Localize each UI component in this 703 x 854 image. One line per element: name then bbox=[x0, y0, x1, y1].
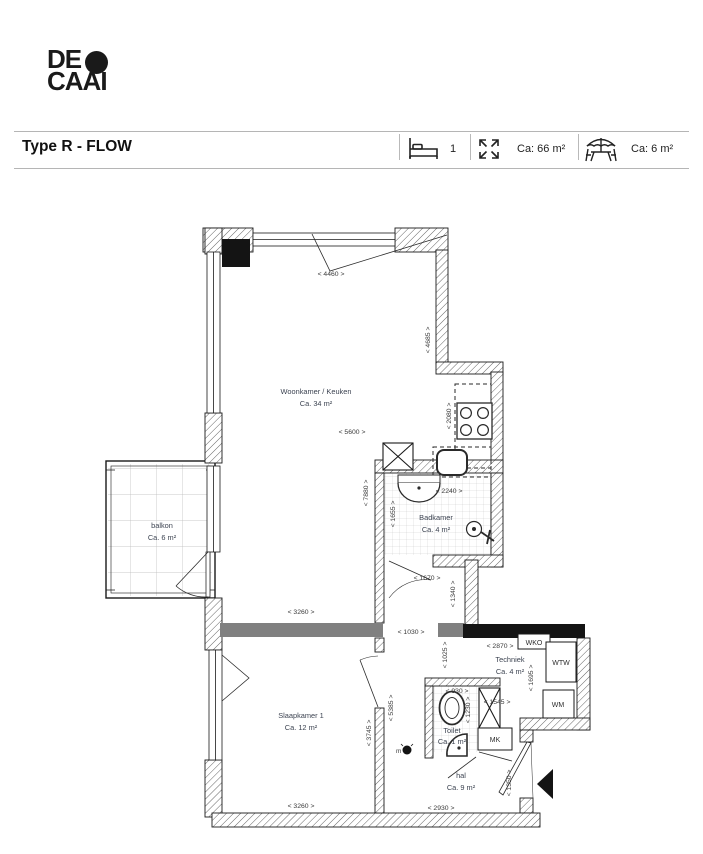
dim-label: < 1670 > bbox=[414, 575, 441, 582]
wall-segment bbox=[577, 638, 590, 730]
shaft-x-box bbox=[479, 688, 500, 728]
dim-label: < 1030 > bbox=[398, 629, 425, 636]
dim-label: < 5385 > bbox=[388, 695, 395, 722]
room-name: Slaapkamer 1 bbox=[278, 711, 324, 720]
room-area: Ca. 4 m² bbox=[422, 525, 451, 534]
gray-wall bbox=[220, 623, 383, 637]
wall-segment bbox=[425, 678, 500, 686]
room-area: Ca. 6 m² bbox=[148, 533, 177, 542]
dim-label: < 2870 > bbox=[487, 643, 514, 650]
entrance-arrow-icon bbox=[537, 769, 553, 799]
mv-point-label: m bbox=[396, 748, 401, 755]
room-area: Ca. 9 m² bbox=[447, 783, 476, 792]
dim-label: < 1025 > bbox=[442, 642, 449, 669]
closet-label: WM bbox=[552, 702, 565, 709]
toilet-bowl bbox=[440, 692, 465, 725]
dim-label: < 1695 > bbox=[528, 665, 535, 692]
floor-plan: m Woonkamer / Keuken Ca. 34 m² balkon Ca… bbox=[0, 0, 703, 854]
dim-label: < 1545 > bbox=[484, 699, 511, 706]
dim-label: < 2930 > bbox=[428, 805, 455, 812]
closet-label: MK bbox=[490, 737, 501, 744]
wall-segment bbox=[205, 228, 222, 254]
dim-label: < 7880 > bbox=[363, 480, 370, 507]
wall-segment bbox=[465, 560, 478, 626]
kitchen-sink bbox=[437, 450, 467, 475]
dim-label: < 930 > bbox=[445, 688, 468, 695]
dim-label: < 3745 > bbox=[366, 720, 373, 747]
room-area: Ca. 12 m² bbox=[285, 723, 318, 732]
wall-segment bbox=[205, 760, 222, 817]
window bbox=[253, 233, 395, 246]
wall-segment bbox=[436, 250, 448, 364]
mv-point: m bbox=[396, 744, 413, 755]
dim-label: < 2080 > bbox=[446, 403, 453, 430]
dim-label: < 1230 > bbox=[465, 697, 472, 724]
dim-label: < 3260 > bbox=[288, 803, 315, 810]
shaft-x-box bbox=[383, 443, 413, 470]
closet-label: WKO bbox=[526, 640, 543, 647]
slaapkamer-door bbox=[360, 656, 378, 707]
floor-finishes bbox=[108, 464, 491, 752]
interior-walls bbox=[220, 239, 585, 638]
wall-segment bbox=[425, 686, 433, 758]
dim-label: < 1340 > bbox=[450, 581, 457, 608]
wall-segment bbox=[205, 413, 222, 463]
wall-segment bbox=[212, 813, 540, 827]
dim-label: < 2240 > bbox=[436, 488, 463, 495]
room-name: Woonkamer / Keuken bbox=[281, 387, 352, 396]
dim-label: < 1655 > bbox=[390, 501, 397, 528]
shaft-black-square bbox=[222, 239, 250, 267]
gray-wall bbox=[438, 623, 465, 637]
dim-label: < 1350 > bbox=[506, 770, 513, 797]
room-area: Ca. 34 m² bbox=[300, 399, 333, 408]
mk-door bbox=[479, 752, 512, 761]
wall-segment bbox=[375, 708, 384, 813]
window-vent-symbol bbox=[222, 655, 249, 701]
room-name: Badkamer bbox=[419, 513, 453, 522]
wall-segment bbox=[520, 730, 533, 742]
closet-label: WTW bbox=[552, 660, 570, 667]
window bbox=[209, 650, 222, 760]
room-name: balkon bbox=[151, 521, 173, 530]
room-name: hal bbox=[456, 771, 466, 780]
dim-label: < 3260 > bbox=[288, 609, 315, 616]
wall-segment bbox=[205, 598, 222, 650]
room-name: Techniek bbox=[495, 655, 524, 664]
wall-segment bbox=[491, 372, 503, 468]
dim-label: < 4685 > bbox=[425, 327, 432, 354]
window bbox=[207, 252, 220, 413]
dim-label: < 5600 > bbox=[339, 429, 366, 436]
wall-segment bbox=[520, 798, 533, 813]
wall-segment bbox=[491, 473, 503, 567]
room-area: Ca. 4 m² bbox=[496, 667, 525, 676]
room-name: Toilet bbox=[443, 726, 460, 735]
wall-segment bbox=[520, 718, 590, 730]
balkon-tiles bbox=[108, 464, 212, 596]
room-area: Ca. 1 m² bbox=[438, 737, 467, 746]
window bbox=[207, 466, 220, 552]
dim-label: < 4460 > bbox=[318, 271, 345, 278]
wall-segment bbox=[375, 473, 384, 623]
wall-segment bbox=[375, 638, 384, 652]
